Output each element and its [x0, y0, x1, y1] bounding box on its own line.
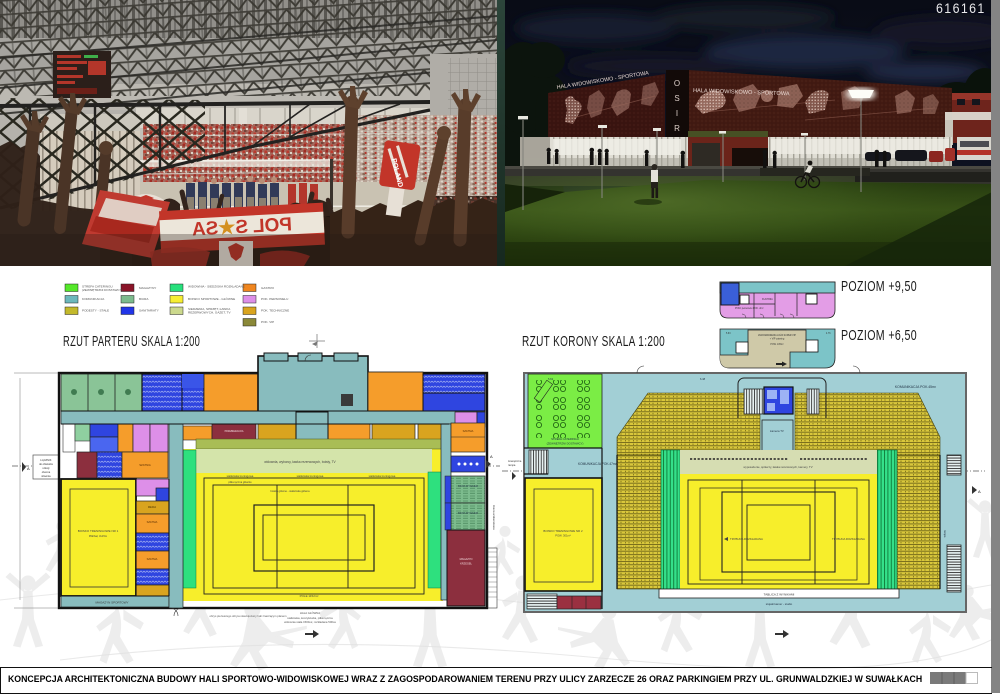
svg-text:kamera TV: kamera TV — [770, 429, 784, 433]
svg-text:MAGAZYN: MAGAZYN — [460, 557, 473, 561]
svg-text:KUCHNIA: KUCHNIA — [762, 298, 773, 301]
svg-text:PRZEBIERALNIA: PRZEBIERALNIA — [225, 430, 244, 433]
svg-text:6.48: 6.48 — [700, 377, 706, 381]
svg-text:KRZESEŁ: KRZESEŁ — [460, 562, 472, 566]
svg-text:POW. 301m²: POW. 301m² — [555, 534, 570, 538]
svg-text:TRYBUNA ROZKŁADANA: TRYBUNA ROZKŁADANA — [730, 537, 763, 541]
svg-text:4.76: 4.76 — [826, 333, 831, 335]
svg-text:SZATNIA: SZATNIA — [139, 463, 151, 467]
svg-text:ŁĄCZNIK: ŁĄCZNIK — [41, 458, 52, 462]
svg-text:piłka ręczna głównie: piłka ręczna głównie — [228, 480, 252, 484]
svg-text:POK. TECHNICZNE: POK. TECHNICZNE — [261, 309, 289, 313]
svg-text:A: A — [27, 466, 30, 471]
svg-text:A: A — [490, 454, 493, 459]
svg-text:PODESTY - STAŁE: PODESTY - STAŁE — [82, 309, 109, 313]
svg-text:I: I — [676, 109, 678, 118]
svg-text:TABLICA Z WYNIKAMI: TABLICA Z WYNIKAMI — [764, 593, 795, 597]
svg-text:STREFA CATERINGU: STREFA CATERINGU — [551, 437, 579, 441]
svg-text:wyposażenie, spikerzy, ławka r: wyposażenie, spikerzy, ławka rezerwowych… — [743, 465, 812, 469]
svg-text:O: O — [674, 79, 680, 88]
svg-text:MEDIA: MEDIA — [148, 505, 156, 509]
svg-text:siatkówka treningowa: siatkówka treningowa — [227, 474, 254, 478]
svg-text:KOMUNIKACJA: KOMUNIKACJA — [82, 297, 105, 301]
svg-text:KOMUNIKACJA POK.47m²: KOMUNIKACJA POK.47m² — [578, 462, 617, 466]
svg-text:POM. personelu POK. 2m²: POM. personelu POK. 2m² — [735, 307, 764, 310]
svg-text:widownia, wyborcy, ławka rezer: widownia, wyborcy, ławka rezerwowych, bo… — [264, 460, 336, 464]
svg-text:S: S — [674, 94, 679, 103]
svg-text:MAGAZYNY: MAGAZYNY — [139, 286, 156, 290]
svg-text:KOMUNIKACJA POK.45m²: KOMUNIKACJA POK.45m² — [895, 385, 937, 389]
svg-text:Piłk/bal, 3x15m: Piłk/bal, 3x15m — [89, 534, 108, 538]
svg-text:SZATNIA: SZATNIA — [147, 520, 158, 524]
svg-text:BIURA WYNAJEM: BIURA WYNAJEM — [458, 512, 478, 515]
svg-text:POK. VIP: POK. VIP — [261, 320, 274, 324]
svg-text:5.63: 5.63 — [726, 333, 731, 335]
svg-text:rampa: rampa — [508, 463, 516, 467]
svg-text:+ VIP catering: + VIP catering — [770, 337, 785, 340]
svg-text:5.63: 5.63 — [548, 377, 554, 381]
svg-text:rampa: rampa — [943, 530, 947, 538]
svg-text:zewnętrzna: zewnętrzna — [508, 459, 522, 463]
svg-text:SZATNIA: SZATNIA — [463, 429, 474, 433]
svg-text:siatkówka treningowa: siatkówka treningowa — [297, 474, 324, 478]
svg-text:siatkówka treningowa: siatkówka treningowa — [369, 474, 396, 478]
svg-text:BOISKO SPORTOWE - GŁÓWNE: BOISKO SPORTOWE - GŁÓWNE — [188, 296, 235, 301]
svg-text:obecna: obecna — [42, 470, 51, 474]
svg-text:POW. 105m²: POW. 105m² — [770, 343, 783, 346]
svg-text:A: A — [978, 489, 981, 494]
svg-text:obrys pierwszego obrysu skazuj: obrys pierwszego obrysu skazujozony hali… — [210, 614, 288, 618]
svg-text:SANITARIATY: SANITARIATY — [139, 309, 159, 313]
svg-text:SZATNIA: SZATNIA — [147, 557, 158, 561]
svg-text:(ZEWNĘTRZNI DOSTAWCY): (ZEWNĘTRZNI DOSTAWCY) — [82, 288, 123, 292]
svg-text:POK. PERSONELU: POK. PERSONELU — [261, 297, 288, 301]
svg-text:BIURA: BIURA — [139, 297, 149, 301]
svg-text:szkoły: szkoły — [42, 466, 50, 470]
svg-text:GASTRO: GASTRO — [261, 286, 275, 290]
svg-text:widownia stała 1500os; rozkład: widownia stała 1500os; rozkładana 500os — [284, 620, 336, 624]
svg-text:ZGROMADZENIA LOŻA SUPER VIP: ZGROMADZENIA LOŻA SUPER VIP — [758, 334, 796, 337]
svg-text:(ZEWNĘTRZNI DOSTAWCY): (ZEWNĘTRZNI DOSTAWCY) — [547, 441, 584, 445]
svg-text:boisko główne - siatkówka głó: boisko główne - siatkówka główna — [270, 489, 310, 493]
svg-text:R: R — [674, 124, 680, 133]
svg-text:HALA GŁÓWNA: HALA GŁÓWNA — [300, 610, 320, 615]
svg-text:TRYBUNA ROZKŁADANA: TRYBUNA ROZKŁADANA — [832, 537, 865, 541]
svg-text:BOISKO TRENINGOWE NR 2: BOISKO TRENINGOWE NR 2 — [543, 529, 583, 533]
svg-text:MAGAZYN SPORTOWY: MAGAZYN SPORTOWY — [95, 601, 128, 605]
svg-text:REZERWOWYCH, GAZET, TV: REZERWOWYCH, GAZET, TV — [188, 311, 231, 315]
svg-text:do obiektów: do obiektów — [39, 462, 53, 466]
svg-text:stojaki kamer - studio: stojaki kamer - studio — [766, 602, 793, 606]
svg-text:BOISKO TRENINGOWE NR 1: BOISKO TRENINGOWE NR 1 — [78, 529, 119, 533]
svg-text:siłownia: siłownia — [41, 474, 51, 478]
svg-text:BIURA WYNAJEM: BIURA WYNAJEM — [458, 485, 478, 488]
svg-text:POLE 1152m²: POLE 1152m² — [300, 594, 319, 598]
svg-text:WIDOWNIA - SIEDZISKA ROZKŁADAN: WIDOWNIA - SIEDZISKA ROZKŁADANE — [188, 285, 245, 289]
svg-text:Arena widowiskowa: Arena widowiskowa — [492, 505, 496, 530]
